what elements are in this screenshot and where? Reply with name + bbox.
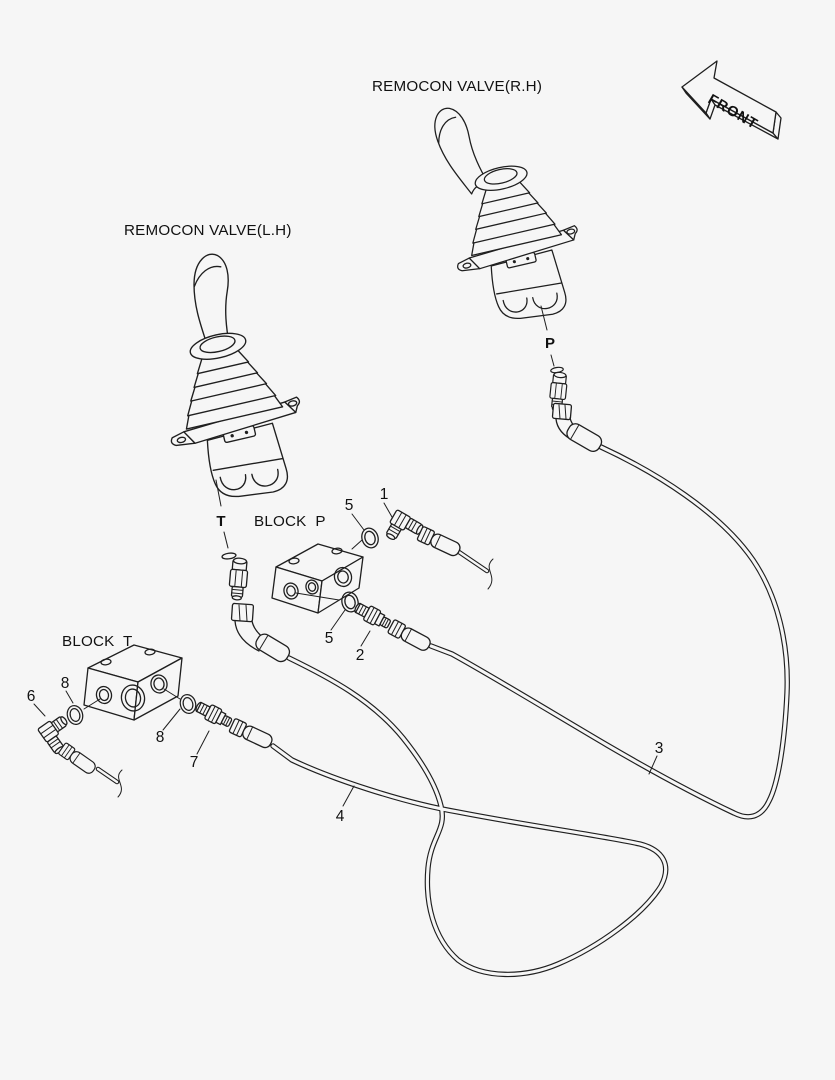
callout-8-right: 8 [156,729,165,746]
callout-4: 4 [336,808,345,825]
oring-5-top [359,526,380,550]
callout-8-left: 8 [61,675,70,692]
remocon-valve-rh [422,82,595,332]
label-block-p: BLOCK P [254,513,326,530]
nipple-fitting-7 [193,699,233,730]
front-arrow: FRONT [682,61,781,139]
hose-end-7 [229,718,274,750]
hose-end-6 [58,742,97,775]
hose-end-1 [417,526,462,558]
hose-3 [431,447,787,817]
elbow-fitting-1 [383,510,425,550]
callout-7: 7 [190,754,199,771]
parts-diagram: FRONT REMOCON VALVE(R.H) REMOCON VALVE(L… [0,0,835,1080]
oring-8-left [65,704,85,726]
callout-2: 2 [356,647,365,664]
label-valve-lh: REMOCON VALVE(L.H) [124,222,292,239]
p-port-elbow-hose-end [552,403,604,454]
port-label-p: P [545,335,555,352]
t-port-adapter-fitting [228,557,249,600]
block-t [84,645,182,720]
port-label-t: T [216,513,225,530]
t-port-elbow-hose-end [231,603,292,664]
callout-1: 1 [380,486,389,503]
label-block-t: BLOCK T [62,633,133,650]
parts-diagram-page: FRONT REMOCON VALVE(R.H) REMOCON VALVE(L… [0,0,835,1080]
callout-5-bottom: 5 [325,630,334,647]
hose-4 [273,658,666,974]
remocon-valve-lh [132,241,318,512]
oring-8-right [178,693,198,715]
block-p [272,544,363,613]
hose-end-2 [387,619,432,652]
callout-3: 3 [655,740,664,757]
label-valve-rh: REMOCON VALVE(R.H) [372,78,542,95]
nipple-fitting-2 [352,600,392,632]
callout-6: 6 [27,688,36,705]
hose-stub-block-p [459,552,493,589]
hose-stub-block-t [98,769,122,797]
callout-5-top: 5 [345,497,354,514]
